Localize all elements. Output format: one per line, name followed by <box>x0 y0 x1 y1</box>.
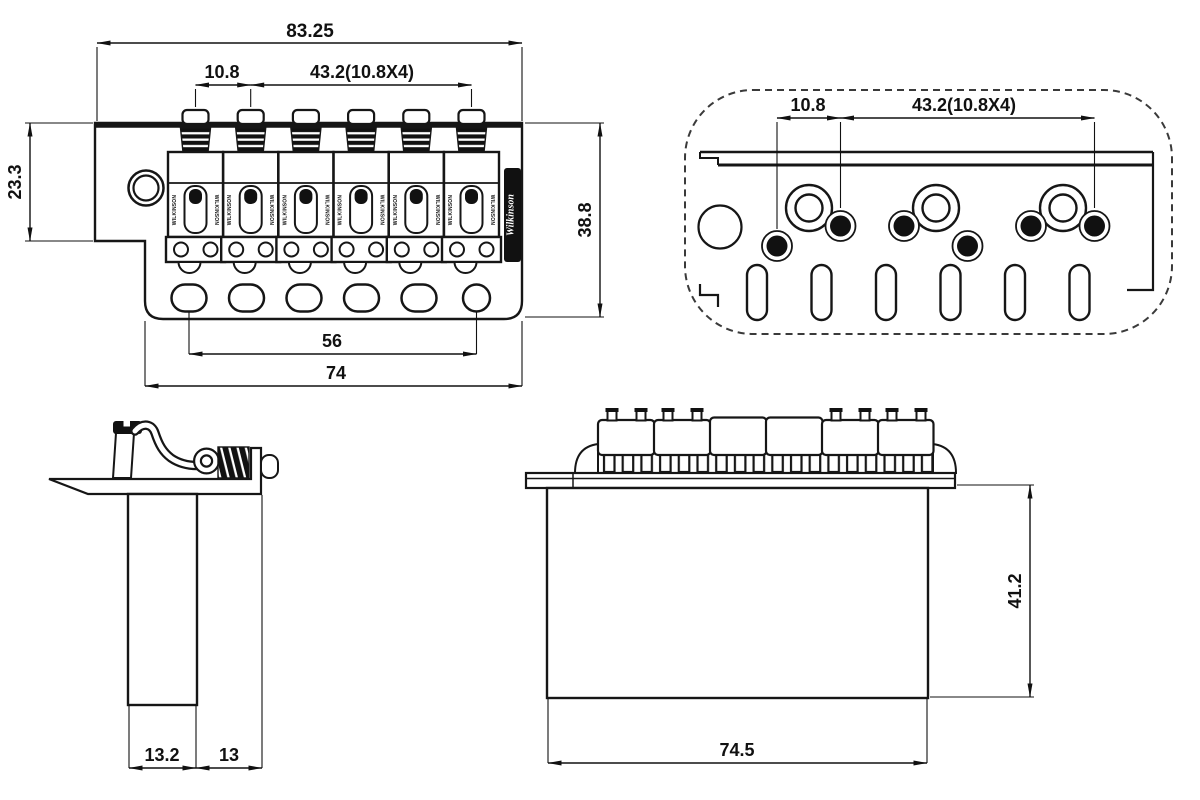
tremolo-arm-socket-inner <box>134 176 159 201</box>
saddle-block <box>654 420 711 455</box>
intonation-screw-head <box>403 110 429 124</box>
dim-block-width-label: 74.5 <box>719 740 754 760</box>
sustain-block-rear <box>547 488 928 698</box>
saddle-stud <box>635 408 648 421</box>
plate-rear <box>526 473 955 488</box>
saddle <box>276 152 335 273</box>
mounting-hole <box>344 285 379 312</box>
saddle-row-rear <box>575 408 956 473</box>
sustain-block-side <box>128 494 197 705</box>
mounting-hole <box>229 285 264 312</box>
rear-view: 74.5 41.2 <box>526 408 1034 763</box>
drawing-page: WILKINSON WILKINSON <box>0 0 1200 800</box>
saddle-stud <box>859 408 872 421</box>
string-hole <box>889 211 919 241</box>
string-hole <box>826 211 856 241</box>
dim-overall-width-label: 83.25 <box>286 21 334 42</box>
pivot-screw-ring <box>913 185 959 231</box>
spring-slot <box>812 265 832 320</box>
plate-shoulder-left <box>575 444 598 473</box>
spring-slot <box>876 265 896 320</box>
mounting-hole <box>287 285 322 312</box>
mounting-hole <box>463 285 490 312</box>
height-screw <box>113 433 134 478</box>
saddle <box>387 152 446 273</box>
saddle-block <box>822 420 879 455</box>
saddle-stud <box>886 408 899 421</box>
saddle <box>166 152 225 273</box>
side-view: 13.2 13 <box>49 421 278 768</box>
saddle-stud <box>606 408 619 421</box>
spring-slot <box>1005 265 1025 320</box>
saddle <box>332 152 391 273</box>
intonation-screw-head <box>183 110 209 124</box>
arm-socket-hole <box>699 206 742 249</box>
spring-slot <box>941 265 961 320</box>
dim-string-spacing-front: 10.8 43.2(10.8X4) <box>196 62 472 107</box>
dim-left-height: 23.3 <box>5 123 93 241</box>
intonation-screw-head <box>238 110 264 124</box>
dim-string-pitch-top-label: 10.8 <box>790 95 825 115</box>
string-hole <box>1080 211 1110 241</box>
dim-string-span-label: 43.2(10.8X4) <box>310 62 414 82</box>
wilkinson-logo-text: Wilkinson <box>506 194 517 236</box>
mounting-hole <box>172 285 207 312</box>
saddle-block <box>878 420 934 455</box>
saddle <box>221 152 280 273</box>
dim-mount-hole-span-label: 56 <box>322 331 342 351</box>
dim-overall-height-label: 41.2 <box>1005 573 1025 608</box>
saddle-block <box>710 418 767 456</box>
dim-string-span-top-label: 43.2(10.8X4) <box>912 95 1016 115</box>
dim-string-pitch-label: 10.8 <box>204 62 239 82</box>
dim-right-height-label: 38.8 <box>575 202 595 237</box>
mounting-hole <box>402 285 437 312</box>
spring-slot <box>747 265 767 320</box>
saddle-stud <box>830 408 843 421</box>
saddle-spring-side <box>218 447 249 478</box>
saddle <box>442 152 501 273</box>
saddle-side-arm <box>135 425 216 470</box>
dim-block-width: 74.5 <box>548 698 927 763</box>
string-hole <box>1016 211 1046 241</box>
wilkinson-logo-band: Wilkinson <box>504 168 521 262</box>
intonation-screw-head <box>293 110 319 124</box>
plate-shoulder-right <box>933 444 956 473</box>
technical-drawing: WILKINSON WILKINSON <box>0 0 1200 800</box>
string-hole <box>953 231 983 261</box>
front-view: Wilkinson 83.25 10.8 43.2(10.8X4) <box>5 21 604 386</box>
top-view: 10.8 43.2(10.8X4) <box>685 90 1172 334</box>
intonation-screw-head <box>459 110 485 124</box>
string-hole <box>762 231 792 261</box>
dim-right-height: 38.8 <box>525 123 604 317</box>
saddle-stud <box>691 408 704 421</box>
saddle-screw-teeth <box>598 455 933 473</box>
intonation-screw-head <box>348 110 374 124</box>
saddle-stud <box>662 408 675 421</box>
dim-block-thickness-label: 13.2 <box>144 745 179 765</box>
dim-overall-height-rear: 41.2 <box>930 485 1034 697</box>
intonation-screw-end <box>261 455 278 478</box>
dim-left-height-label: 23.3 <box>5 164 25 199</box>
spring-slot <box>1070 265 1090 320</box>
dim-back-offset-label: 13 <box>219 745 239 765</box>
saddle-stud <box>915 408 928 421</box>
saddle-block <box>598 420 655 455</box>
saddle-block <box>766 418 823 456</box>
dim-plate-width-label: 74 <box>326 363 346 383</box>
